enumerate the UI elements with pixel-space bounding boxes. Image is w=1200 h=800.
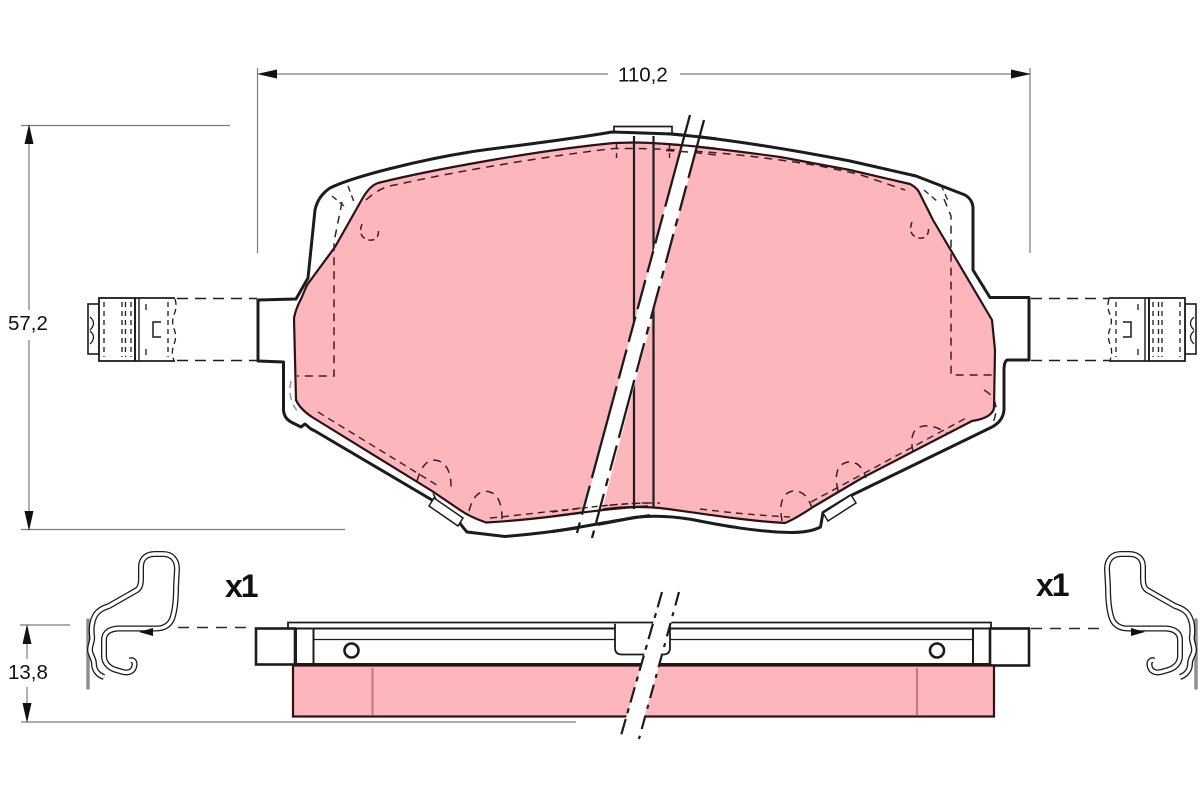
- svg-text:110,2: 110,2: [618, 64, 668, 87]
- svg-text:x1: x1: [1036, 567, 1069, 603]
- svg-text:x1: x1: [225, 568, 258, 604]
- svg-text:13,8: 13,8: [8, 661, 48, 684]
- svg-text:57,2: 57,2: [8, 312, 48, 335]
